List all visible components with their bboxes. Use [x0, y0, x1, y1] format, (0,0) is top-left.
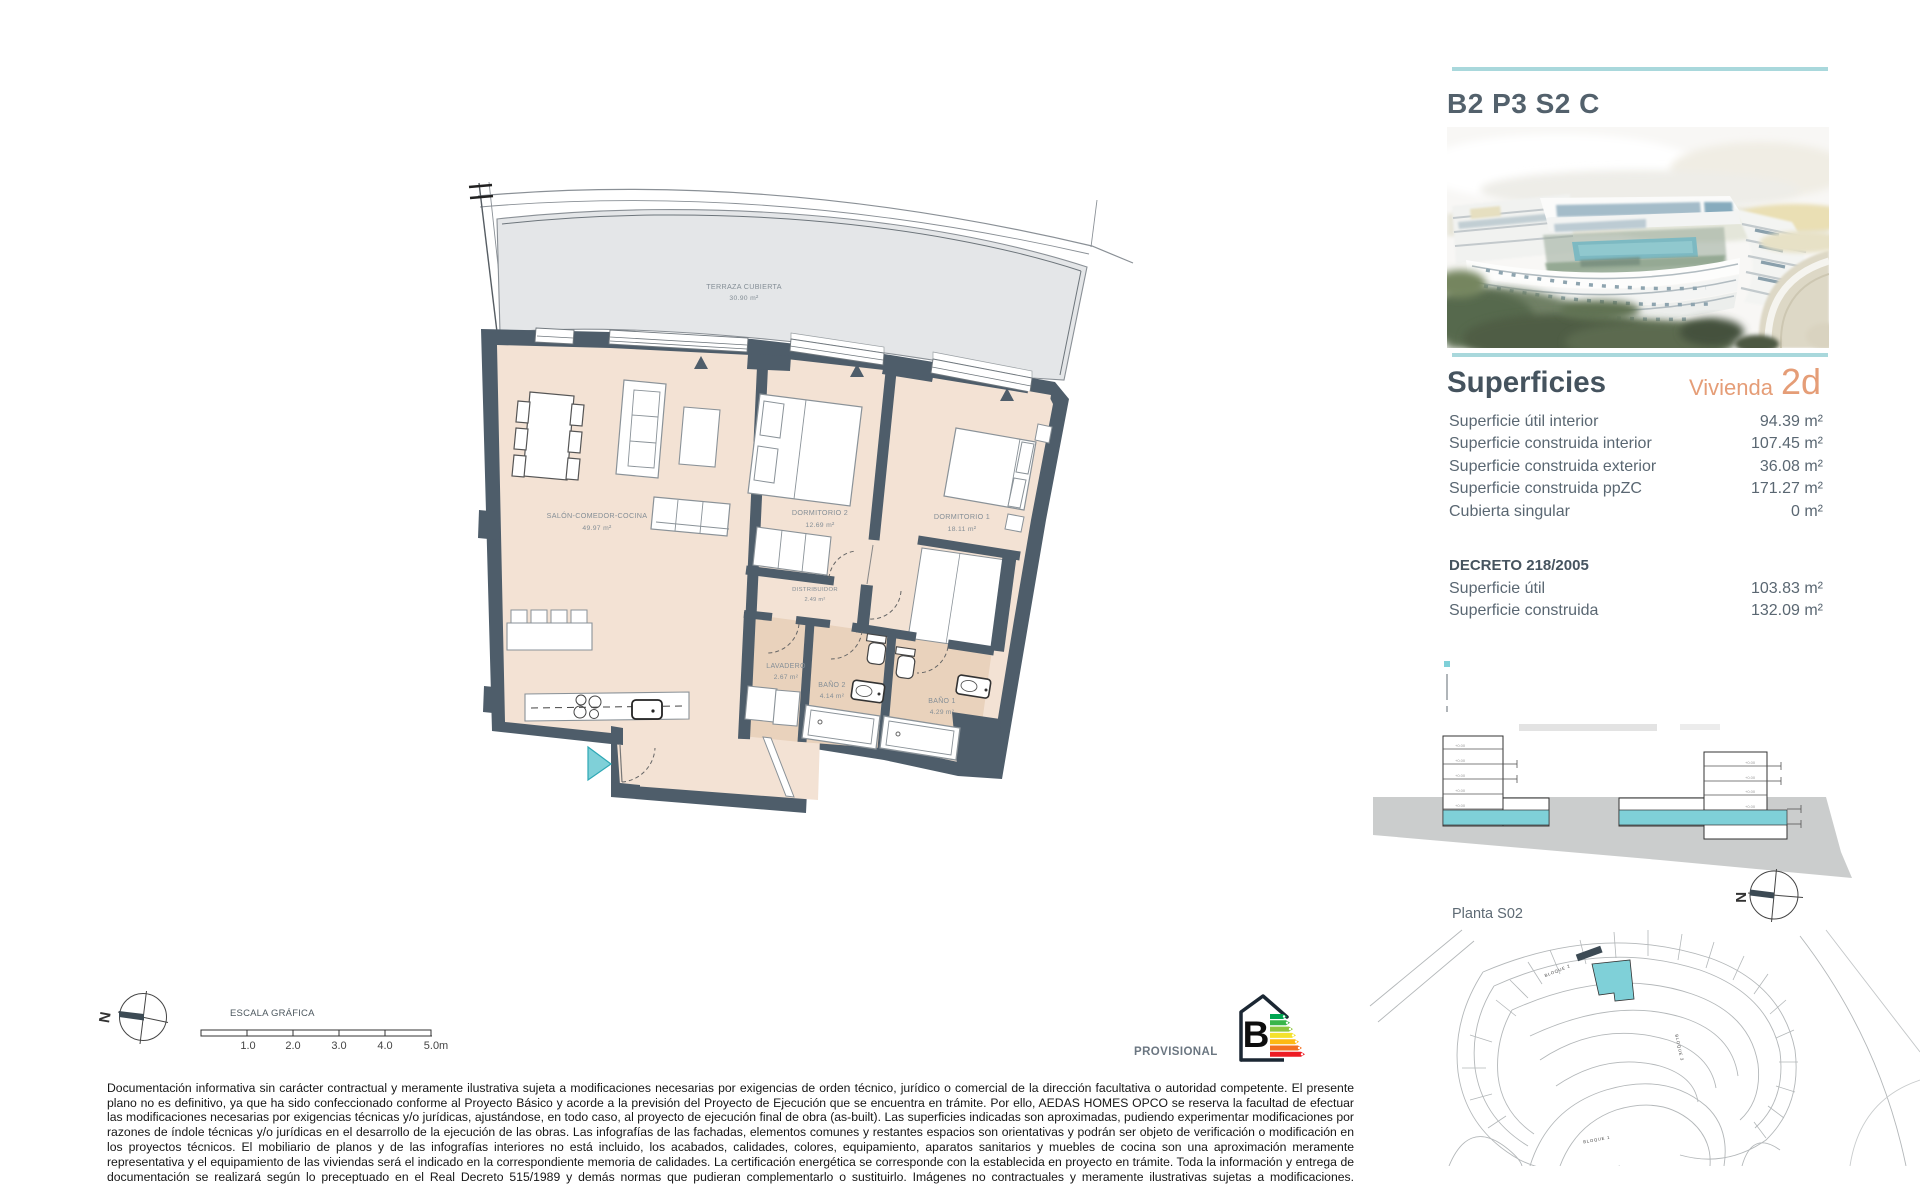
svg-text:2.49 m²: 2.49 m² [804, 597, 825, 603]
svg-text:30.90 m²: 30.90 m² [729, 295, 759, 302]
svg-text:+0.00: +0.00 [1745, 760, 1756, 765]
svg-text:BLOQUE 1: BLOQUE 1 [1583, 1135, 1611, 1145]
svg-text:+0.00: +0.00 [1455, 788, 1466, 793]
svg-text:B: B [1243, 1014, 1270, 1055]
svg-text:5.0m: 5.0m [424, 1040, 448, 1052]
svg-text:1.0: 1.0 [240, 1040, 255, 1052]
svg-text:SALÓN-COMEDOR-COCINA: SALÓN-COMEDOR-COCINA [547, 511, 648, 520]
svg-text:4.14 m²: 4.14 m² [820, 693, 845, 700]
svg-text:BAÑO 1: BAÑO 1 [928, 696, 955, 705]
svg-text:N: N [1733, 891, 1750, 902]
svg-text:4.29 m²: 4.29 m² [930, 709, 955, 716]
svg-text:12.69 m²: 12.69 m² [805, 522, 835, 529]
svg-text:BLOQUE 3: BLOQUE 3 [1674, 1034, 1685, 1062]
svg-text:DORMITORIO 2: DORMITORIO 2 [792, 508, 848, 517]
svg-text:+0.00: +0.00 [1455, 758, 1466, 763]
svg-text:BLOQUE 2: BLOQUE 2 [1544, 963, 1571, 978]
svg-text:DISTRIBUIDOR: DISTRIBUIDOR [792, 587, 838, 593]
svg-text:TERRAZA CUBIERTA: TERRAZA CUBIERTA [706, 282, 782, 291]
svg-text:49.97 m²: 49.97 m² [582, 525, 612, 532]
svg-text:+0.00: +0.00 [1455, 743, 1466, 748]
svg-text:+0.00: +0.00 [1745, 789, 1756, 794]
svg-text:DORMITORIO 1: DORMITORIO 1 [934, 512, 990, 521]
svg-text:+0.00: +0.00 [1455, 803, 1466, 808]
svg-text:3.0: 3.0 [331, 1040, 346, 1052]
svg-text:2.0: 2.0 [285, 1040, 300, 1052]
svg-text:N: N [96, 1010, 115, 1024]
svg-text:LAVADERO: LAVADERO [766, 663, 806, 670]
svg-text:+0.00: +0.00 [1455, 773, 1466, 778]
svg-text:+0.00: +0.00 [1745, 775, 1756, 780]
svg-text:18.11 m²: 18.11 m² [948, 526, 977, 533]
svg-text:+0.00: +0.00 [1745, 804, 1756, 809]
svg-text:4.0: 4.0 [377, 1040, 392, 1052]
svg-text:2.67 m²: 2.67 m² [774, 674, 799, 681]
svg-text:BAÑO 2: BAÑO 2 [818, 680, 845, 689]
